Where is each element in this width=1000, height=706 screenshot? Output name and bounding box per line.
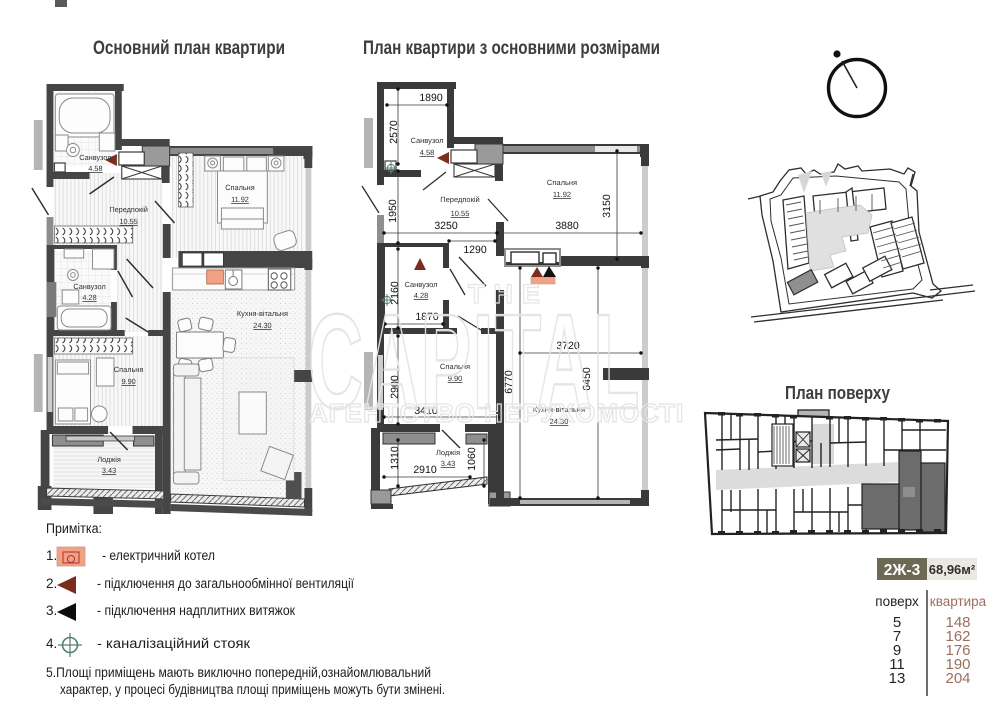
svg-text:Кухня-вітальня: Кухня-вітальня	[237, 309, 288, 318]
svg-text:9.90: 9.90	[121, 377, 135, 386]
svg-text:5.Площі приміщень мають виключ: 5.Площі приміщень мають виключно поперед…	[46, 665, 431, 680]
svg-text:4.: 4.	[46, 636, 57, 651]
svg-text:Передпокій: Передпокій	[109, 205, 148, 214]
svg-text:Санвузол: Санвузол	[404, 280, 437, 289]
svg-text:- каналізаційний стояк: - каналізаційний стояк	[97, 636, 250, 651]
svg-text:4.58: 4.58	[88, 164, 102, 173]
svg-text:3.: 3.	[46, 603, 57, 618]
svg-text:Санвузол: Санвузол	[73, 282, 105, 291]
svg-text:24.30: 24.30	[550, 417, 569, 426]
svg-text:3720: 3720	[556, 340, 580, 352]
svg-text:11.92: 11.92	[553, 190, 571, 199]
svg-text:Спальня: Спальня	[547, 178, 577, 187]
svg-text:204: 204	[945, 670, 970, 687]
svg-text:4.58: 4.58	[420, 148, 435, 157]
svg-text:Спальня: Спальня	[440, 362, 470, 371]
svg-text:6450: 6450	[581, 367, 593, 391]
svg-text:1950: 1950	[387, 199, 399, 223]
svg-text:Санвузол: Санвузол	[410, 136, 443, 145]
svg-text:1890: 1890	[419, 92, 443, 104]
svg-text:3.43: 3.43	[102, 466, 116, 475]
svg-text:Передпокій: Передпокій	[440, 195, 480, 204]
svg-text:Лоджія: Лоджія	[97, 455, 121, 464]
svg-text:Спальня: Спальня	[225, 183, 254, 192]
svg-text:2900: 2900	[389, 375, 401, 399]
svg-text:11.92: 11.92	[231, 195, 249, 204]
svg-text:3410: 3410	[414, 405, 438, 417]
svg-text:10.55: 10.55	[451, 209, 470, 218]
svg-text:- підключення до загальнообмін: - підключення до загальнообмінної вентил…	[97, 576, 354, 591]
svg-text:План квартири з основними розм: План квартири з основними розмірами	[363, 38, 660, 59]
svg-text:Спальня: Спальня	[114, 365, 143, 374]
svg-text:квартира: квартира	[930, 594, 987, 609]
svg-text:4.28: 4.28	[82, 293, 96, 302]
svg-text:4.28: 4.28	[414, 291, 429, 300]
svg-text:6770: 6770	[503, 370, 515, 394]
svg-text:Лоджія: Лоджія	[436, 448, 460, 457]
svg-text:Санвузол: Санвузол	[79, 153, 111, 162]
svg-text:13: 13	[889, 670, 906, 687]
svg-text:1870: 1870	[415, 311, 439, 323]
svg-text:68,96м²: 68,96м²	[929, 562, 976, 577]
svg-text:2910: 2910	[413, 464, 437, 476]
svg-text:2570: 2570	[388, 120, 400, 144]
svg-text:План поверху: План поверху	[785, 383, 890, 403]
svg-text:3.43: 3.43	[441, 459, 456, 468]
svg-text:3250: 3250	[434, 220, 458, 232]
svg-text:Основний план квартири: Основний план квартири	[93, 38, 285, 59]
svg-text:2.: 2.	[46, 576, 57, 591]
svg-text:- підключення надплитних витяж: - підключення надплитних витяжок	[97, 603, 295, 618]
svg-text:- електричний котел: - електричний котел	[102, 548, 215, 563]
svg-text:2160: 2160	[389, 281, 401, 305]
svg-text:1060: 1060	[466, 447, 478, 471]
svg-text:9.90: 9.90	[448, 374, 463, 383]
svg-text:2Ж-3: 2Ж-3	[884, 562, 921, 579]
svg-text:3880: 3880	[555, 220, 579, 232]
svg-text:Примітка:: Примітка:	[46, 521, 102, 536]
svg-text:характер, у процесі будівництв: характер, у процесі будівництва площі пр…	[60, 682, 445, 697]
svg-text:1.: 1.	[46, 548, 57, 563]
svg-text:поверх: поверх	[875, 594, 919, 609]
svg-text:3150: 3150	[601, 194, 613, 218]
svg-text:1310: 1310	[389, 446, 401, 470]
svg-text:24.30: 24.30	[253, 321, 271, 330]
svg-text:Кухня-вітальня: Кухня-вітальня	[533, 405, 585, 414]
svg-text:1290: 1290	[463, 244, 487, 256]
svg-text:10.55: 10.55	[119, 217, 137, 226]
